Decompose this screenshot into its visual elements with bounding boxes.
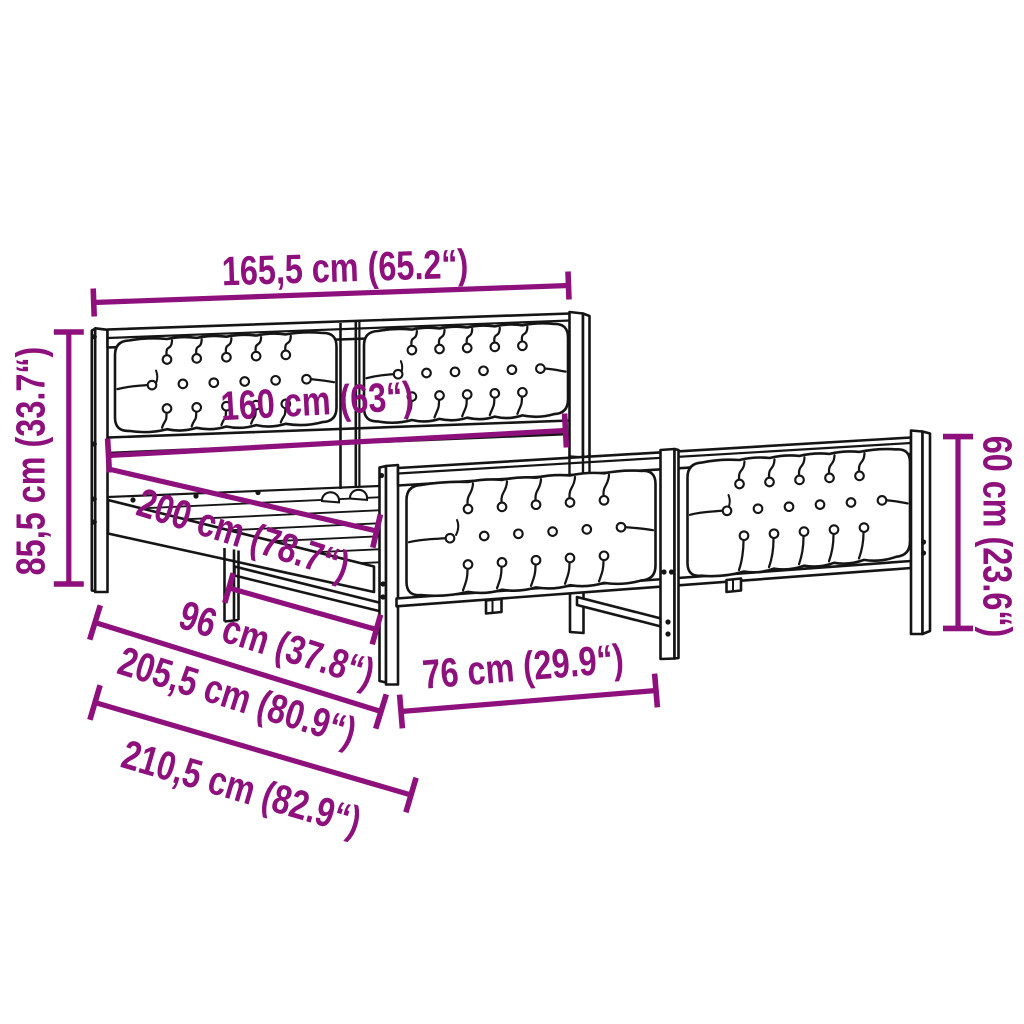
svg-text:60 cm (23.6“): 60 cm (23.6“)	[975, 436, 1021, 638]
svg-text:165,5 cm (65.2“): 165,5 cm (65.2“)	[221, 241, 469, 295]
svg-text:85,5 cm (33.7“): 85,5 cm (33.7“)	[8, 347, 54, 576]
